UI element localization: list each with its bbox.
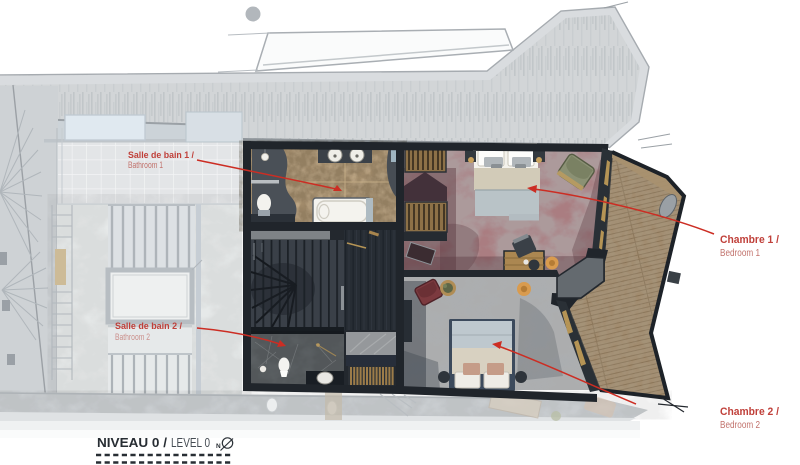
svg-text:Bathroom 2: Bathroom 2 — [115, 332, 150, 343]
svg-text:Bedroom 1: Bedroom 1 — [720, 248, 760, 259]
svg-text:NIVEAU 0 /: NIVEAU 0 / — [97, 435, 167, 450]
svg-text:Bathroom 1: Bathroom 1 — [128, 160, 163, 171]
svg-text:Salle de bain 2 /: Salle de bain 2 / — [115, 321, 182, 332]
svg-text:N: N — [216, 443, 221, 450]
svg-text:Chambre 1 /: Chambre 1 / — [720, 234, 779, 246]
svg-text:Bedroom 2: Bedroom 2 — [720, 420, 760, 431]
svg-text:LEVEL 0: LEVEL 0 — [171, 435, 210, 450]
svg-text:Chambre 2 /: Chambre 2 / — [720, 406, 779, 418]
